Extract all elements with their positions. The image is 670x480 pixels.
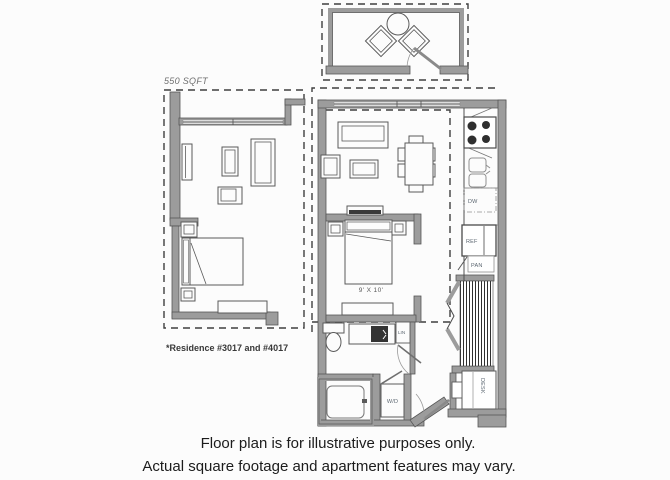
- alt-nightstand-bottom-icon: [181, 288, 195, 301]
- pantry-door: [458, 257, 467, 270]
- nightstand-right-icon: [392, 221, 406, 235]
- vanity-sink-icon: [349, 324, 395, 344]
- bedroom-right-wall-upper: [414, 214, 421, 244]
- disclaimer-line1: Floor plan is for illustrative purposes …: [201, 435, 476, 452]
- stove-icon: [464, 117, 496, 148]
- alt-sofa-icon: [251, 139, 275, 186]
- bathroom-door: [398, 345, 421, 374]
- entry-step-wall: [478, 415, 506, 427]
- sofa-icon: [338, 122, 388, 148]
- nightstand-left-icon: [328, 222, 343, 236]
- washer-dryer-label: W/D: [387, 399, 398, 405]
- alt-side-table-icon: [218, 187, 242, 204]
- alt-unit-window: [183, 119, 283, 125]
- tv-console-icon: [347, 206, 383, 215]
- area-label: 550 SQFT: [164, 76, 209, 86]
- linen-closet: LIN: [396, 322, 410, 343]
- entry-closet: [447, 281, 493, 366]
- bedroom: 9' X 10': [328, 206, 406, 315]
- entry-angled-wall: [410, 397, 449, 427]
- balcony: [326, 10, 468, 74]
- desk-chair-icon: [452, 382, 462, 398]
- pantry-label: PAN: [471, 263, 483, 269]
- desk-label: DESK: [479, 378, 485, 394]
- residence-note: *Residence #3017 and #4017: [166, 343, 288, 353]
- dresser-icon: [342, 303, 393, 315]
- linen-label: LIN: [398, 330, 405, 335]
- alt-armchair-icon: [182, 144, 192, 180]
- wd-right-wall: [404, 374, 411, 422]
- alternate-unit: [170, 92, 305, 325]
- closet-top-wall: [456, 275, 494, 281]
- living-dining: [321, 122, 435, 192]
- desk-nook: DESK: [452, 371, 496, 409]
- floor-plan-page: DW REF PAN DESK: [0, 0, 670, 480]
- washer-dryer: W/D: [381, 371, 404, 417]
- dining-set-icon: [398, 136, 435, 192]
- bedroom-dim-label: 9' X 10': [359, 287, 383, 294]
- patio-table-icon: [387, 13, 409, 35]
- alt-coffee-table-icon: [222, 147, 238, 176]
- wd-door: [381, 371, 402, 384]
- refrigerator: REF: [462, 225, 496, 256]
- desk-icon: [462, 371, 496, 409]
- bath-mid-wall: [373, 374, 380, 422]
- closet-angled-wall-bottom: [447, 329, 459, 350]
- alt-dresser-icon: [218, 301, 267, 313]
- alt-unit-furniture: [181, 139, 275, 313]
- main-unit-window: [334, 101, 460, 107]
- disclaimer-line2: Actual square footage and apartment feat…: [142, 458, 515, 475]
- bedroom-bottom-wall: [326, 315, 416, 322]
- alt-bed-icon: [182, 238, 243, 285]
- coffee-table-icon: [350, 160, 378, 178]
- pantry: PAN: [458, 256, 494, 272]
- dishwasher-label: DW: [468, 199, 478, 205]
- main-right-wall: [498, 100, 506, 417]
- alt-nightstand-top-icon: [181, 222, 197, 237]
- shower-handle: [362, 399, 367, 403]
- dishwasher: DW: [464, 188, 496, 212]
- sink-icon: [469, 158, 490, 187]
- kitchen: DW REF PAN: [458, 108, 498, 290]
- balcony-floor-slab-right: [440, 66, 468, 74]
- balcony-door: [407, 48, 441, 69]
- hall-left-wall: [410, 322, 415, 374]
- bed-icon: [345, 220, 392, 284]
- closet-angled-wall-top: [447, 282, 459, 303]
- floor-plan-drawing: DW REF PAN DESK: [0, 0, 670, 480]
- armchair-icon: [321, 155, 340, 178]
- balcony-floor-slab-left: [326, 66, 410, 74]
- refrigerator-label: REF: [466, 239, 478, 245]
- shower-icon: [319, 379, 372, 424]
- closet-hatch: [460, 281, 493, 366]
